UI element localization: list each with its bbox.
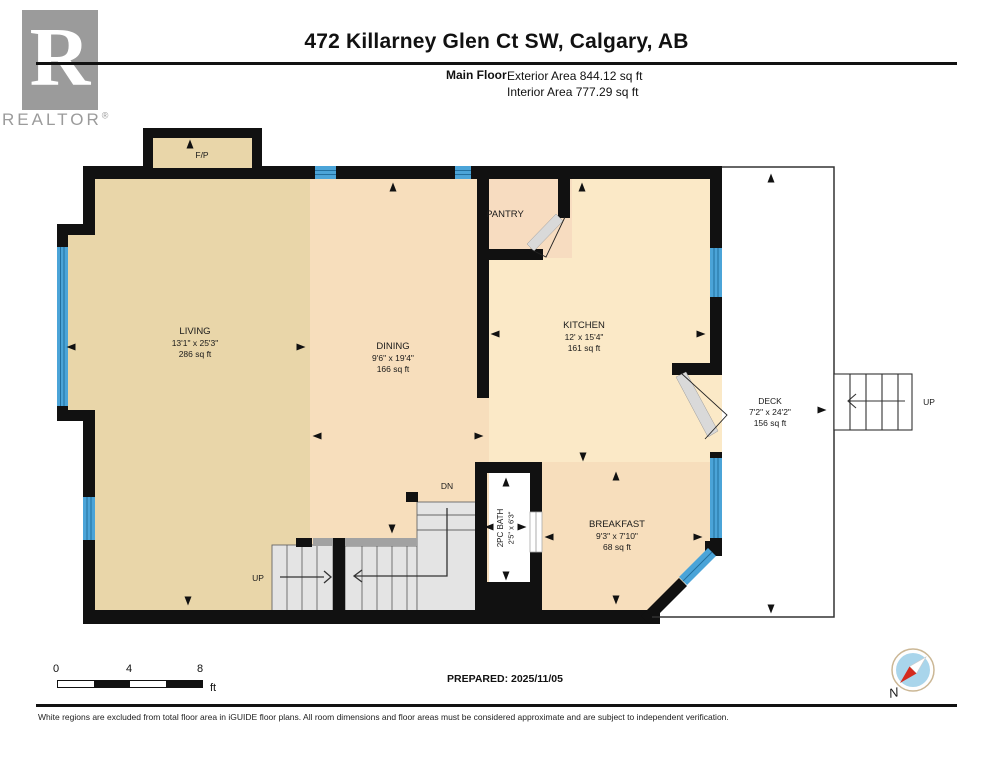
kitchen-area: 161 sq ft: [568, 343, 601, 353]
scale-segment: [58, 681, 94, 687]
breakfast-area: 68 sq ft: [603, 542, 632, 552]
deck-area: 156 sq ft: [754, 418, 787, 428]
scale-tick-4: 4: [126, 663, 132, 675]
dining-area: 166 sq ft: [377, 364, 410, 374]
prepared-date: PREPARED: 2025/11/05: [447, 673, 563, 685]
footer-divider: [36, 704, 957, 707]
living-name: LIVING: [179, 326, 210, 337]
footer-disclaimer: White regions are excluded from total fl…: [38, 712, 958, 722]
pantry-label: PANTRY: [486, 209, 524, 220]
exterior-stairs-up-label: UP: [923, 397, 935, 407]
scale-bar: [57, 680, 203, 688]
breakfast-dims: 9'3" x 7'10": [596, 531, 638, 541]
breakfast-name: BREAKFAST: [589, 519, 645, 530]
stair-landing: [313, 538, 417, 546]
scale-tick-0: 0: [53, 663, 59, 675]
kitchen-name: KITCHEN: [563, 320, 605, 331]
floor-plan: F/P LIVING 13'1" x 25'3" 286 sq ft DININ…: [0, 0, 993, 768]
stairs-up-label: UP: [252, 573, 264, 583]
deck-dims: 7'2" x 24'2": [749, 407, 791, 417]
dining-name: DINING: [376, 341, 409, 352]
compass-north-label: N: [888, 684, 901, 701]
scale-segment: [130, 681, 166, 687]
bath-dims: 2'5" x 6'3": [507, 511, 516, 544]
bath-door: [530, 512, 542, 552]
stairs-down-label: DN: [441, 481, 453, 491]
bath-name: 2PC BATH: [496, 509, 505, 548]
deck-name: DECK: [758, 396, 782, 406]
dining-dims: 9'6" x 19'4": [372, 353, 414, 363]
compass: N: [880, 643, 946, 705]
fireplace-label: F/P: [195, 150, 209, 160]
scale-tick-8: 8: [197, 663, 203, 675]
scale-segment: [166, 681, 202, 687]
exterior-stairs: [834, 374, 912, 430]
scale-unit: ft: [210, 682, 216, 694]
living-area: 286 sq ft: [179, 349, 212, 359]
living-dims: 13'1" x 25'3": [172, 338, 219, 348]
kitchen-dims: 12' x 15'4": [565, 332, 604, 342]
scale-segment: [94, 681, 130, 687]
